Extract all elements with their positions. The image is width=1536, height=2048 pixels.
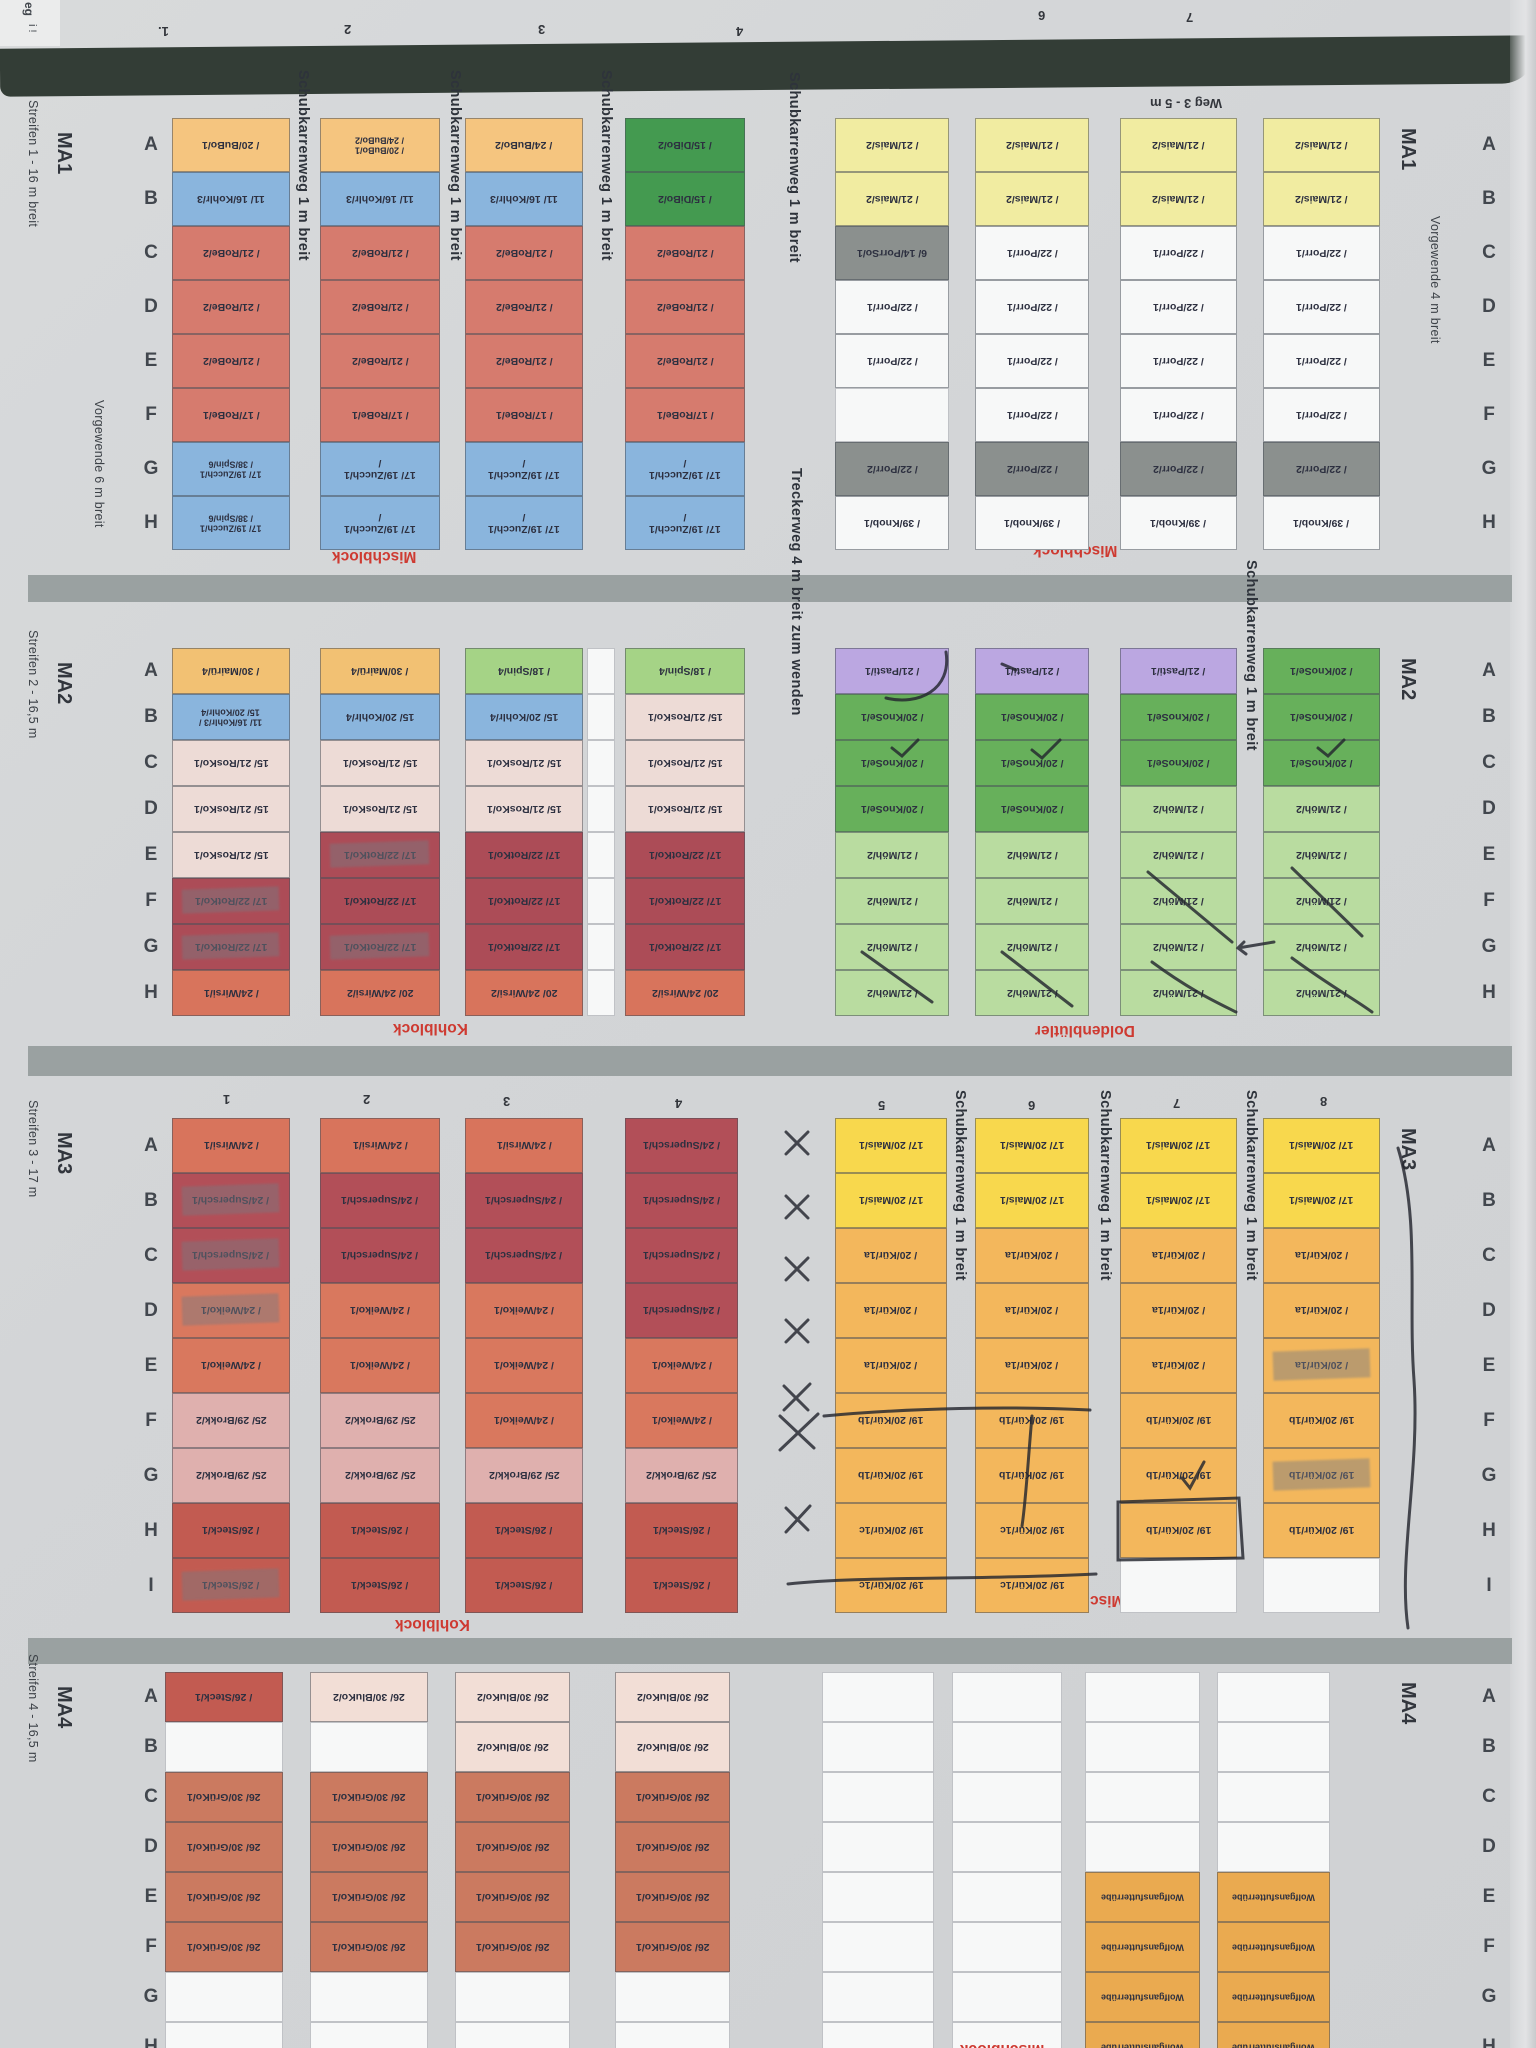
pen-check-knose-8b [1318,740,1344,756]
pen-slash-5gh [862,952,932,1002]
pen-check-knose-5b [892,740,918,756]
garden-plan-photo: eg i ! Weg 3 - 5 m 1.23467Streifen 1 - 1… [0,0,1536,2048]
pen-vstroke-6gh [1022,1416,1032,1526]
pen-x-lane-6 [786,1506,810,1532]
pen-box-7h [1118,1498,1243,1560]
pen-check-knose-6b [1032,740,1060,758]
pen-x-lane-2 [786,1196,808,1218]
pen-wavy-under [788,1574,1096,1584]
pen-slash-8e [1292,868,1362,936]
pen-annotations [0,0,1536,2048]
pen-x-lane-1 [786,1132,808,1154]
pen-swoosh-pasti [886,652,947,700]
pen-check-7g [1182,1462,1204,1488]
pen-x-lane-5 [784,1384,810,1410]
pen-arrow-lane [1238,942,1274,954]
pen-x-lane-big [780,1414,818,1450]
pen-strike-f-row [824,1408,1090,1416]
pen-slash-7gh [1152,962,1236,1012]
pen-x-lane-3 [786,1258,808,1280]
pen-slash-8gh [1292,958,1372,1012]
pen-x-lane-4 [786,1320,808,1342]
pen-slash-7e [1148,872,1232,942]
pen-tick-6a [1002,664,1016,670]
pen-brace-right [1398,1148,1415,1628]
pen-slash-6gh [1002,952,1072,1006]
